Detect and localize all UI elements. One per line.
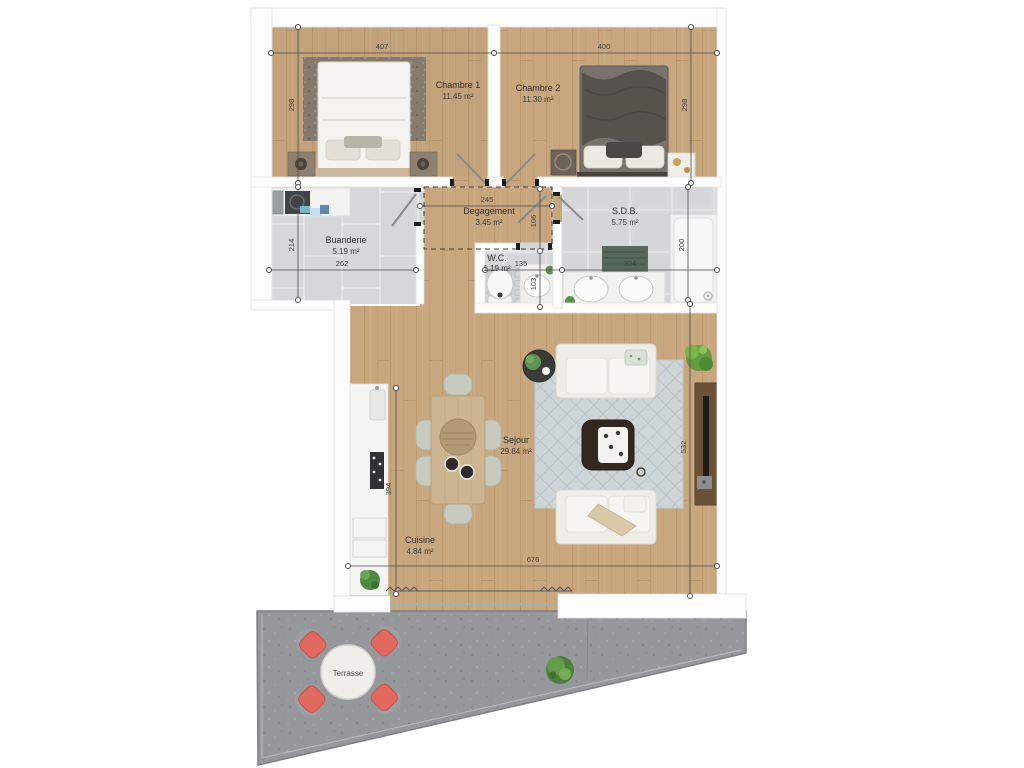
chambre2-area: 11.30 m² [523,95,554,104]
nightstand [551,150,576,175]
chambre2-name: Chambre 2 [516,83,561,93]
chambre1-door-opening [453,176,487,187]
terrasse-label: Terrasse [333,669,364,678]
corridor-floor [420,250,475,312]
tv-screen [703,396,709,484]
nightstand [410,152,437,176]
floorplan-image: Terrasse [0,0,1024,768]
wc-area: 1.19 m² [483,264,510,273]
dim-chambre2-depth: 298 [680,99,689,112]
toilet [487,269,513,305]
dining-table [431,396,485,504]
kitchen-sink [370,390,385,420]
sejour-name: Sejour [503,435,529,445]
buanderie-name: Buanderie [325,235,366,245]
sofa-bottom [556,490,656,544]
bed-chambre1 [315,62,413,177]
buanderie-area: 5.19 m² [332,247,359,256]
wall-bottom-left [334,596,390,612]
dim-buanderie-depth: 214 [287,239,296,252]
wc-name: W.C. [487,253,507,263]
bed-chambre2 [577,66,671,181]
dim-chambre1-depth: 298 [287,99,296,112]
wall-right [717,8,726,612]
sofa-top [556,344,656,398]
side-table [523,350,555,382]
dim-chambre2-width: 400 [598,42,611,51]
sejour-area: 29.84 m² [500,447,532,456]
degagement-name: Degagement [463,206,515,216]
coffee-table [582,420,634,470]
dim-chambre1-width: 407 [376,42,389,51]
shower [670,214,717,306]
kitchen-counter [350,384,388,595]
dim-wc-width: 135 [515,259,528,268]
wall-bottom-right [558,594,746,618]
terrace: Terrasse [257,611,746,765]
nightstand [288,152,315,176]
dim-cuisine-depth: 394 [384,483,393,496]
sdb-name: S.D.B. [612,206,638,216]
sdb-area: 5.75 m² [611,218,638,227]
dim-buanderie-width: 262 [336,259,349,268]
dim-sdb-width: 304 [624,259,637,268]
dim-wc-depth: 103 [529,278,538,291]
wc-basin [520,264,557,307]
cuisine-name: Cuisine [405,535,435,545]
cooktop [370,452,384,489]
dim-degagement-depth: 106 [529,215,538,228]
chambre1-area: 11.45 m² [443,92,474,101]
degagement-area: 3.45 m² [475,218,502,227]
terrace-bush [546,656,574,684]
wall-wc-left [475,243,485,307]
dim-degagement-width: 245 [481,195,494,204]
tv-console [695,383,717,505]
dim-sejour-depth: 532 [679,441,688,454]
wall-wc-sdb-bottom [475,303,717,313]
dim-sdb-depth: 200 [677,239,686,252]
floorplan-svg: Terrasse [0,0,1024,768]
kitchen-plant [360,570,380,590]
wall-top [251,8,721,27]
wall-between-bedrooms [488,25,500,183]
cuisine-area: 4.84 m² [406,547,433,556]
wc-door-opening [520,243,549,251]
dim-sejour-width: 676 [527,555,540,564]
chambre1-name: Chambre 1 [436,80,481,90]
